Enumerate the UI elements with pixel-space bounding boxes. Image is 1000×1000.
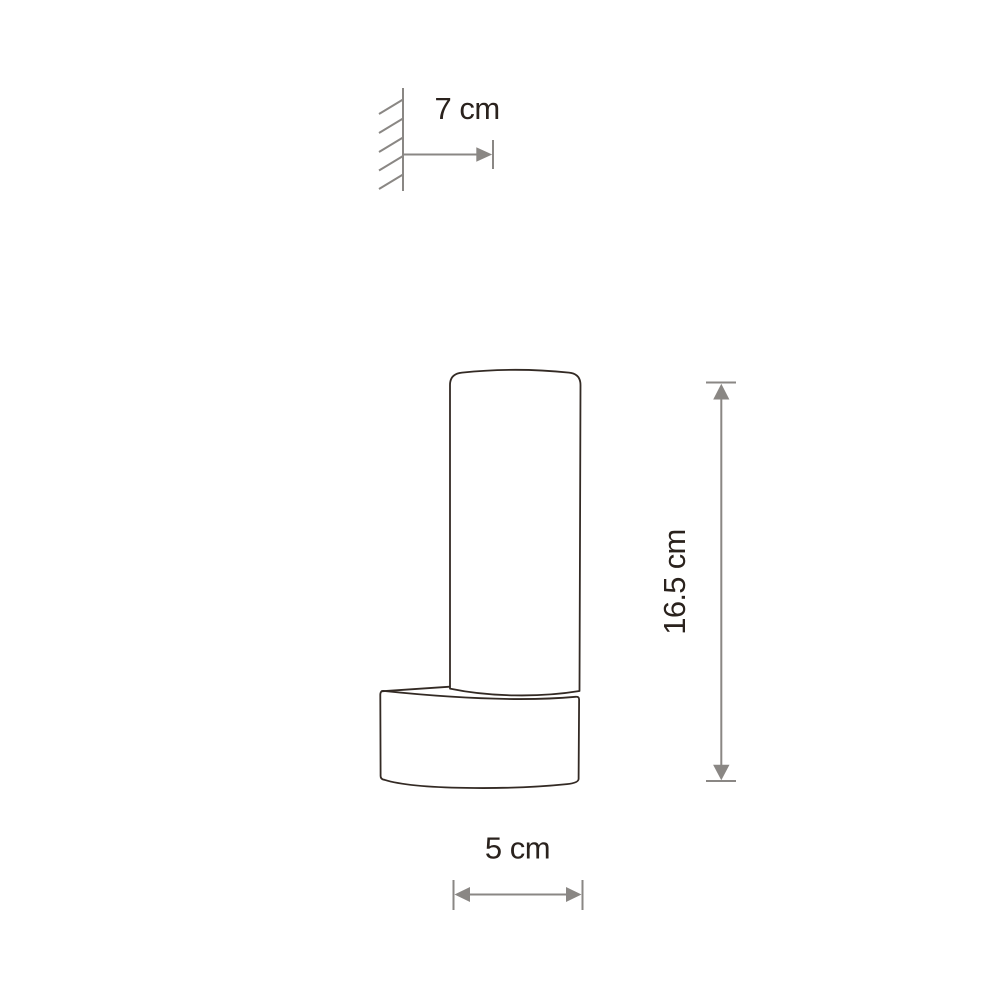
svg-text:7 cm: 7 cm bbox=[435, 91, 500, 126]
svg-text:5 cm: 5 cm bbox=[485, 831, 550, 866]
svg-text:16.5 cm: 16.5 cm bbox=[657, 529, 692, 634]
